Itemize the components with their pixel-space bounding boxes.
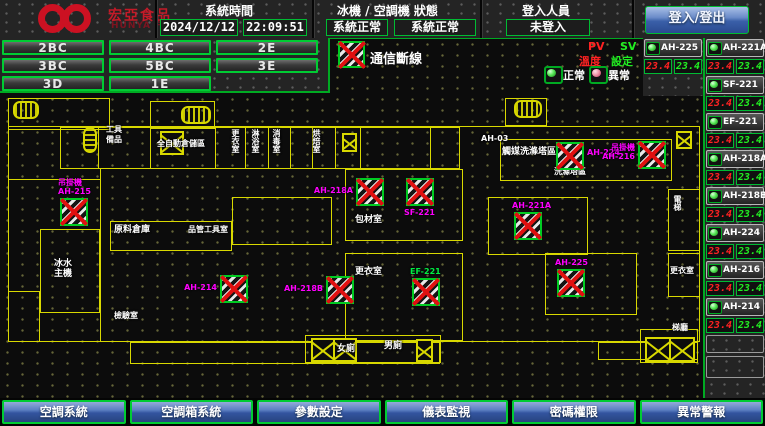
unit-row-ef-221: EF-22123.423.4 — [706, 113, 764, 148]
unit-sv-value: 23.4 — [736, 96, 764, 111]
shaft-icon — [342, 133, 357, 152]
status-led-icon — [708, 116, 722, 129]
unit-name-label: EF-221 — [723, 117, 758, 127]
comm-loss-legend-label: 通信斷線 — [370, 48, 422, 67]
unit-name-label: SF-221 — [723, 80, 758, 90]
device-comm-loss-icon-sf-221[interactable] — [406, 178, 434, 206]
bottom-nav-bar: 空調系統空調箱系統參數設定儀表監視密碼權限異常警報 — [0, 398, 765, 426]
device-label: EF-221 — [410, 267, 441, 276]
status-led-icon — [708, 227, 722, 240]
unit-name-button[interactable]: AH-224 — [706, 224, 764, 242]
system-time-label: 系統時間 — [205, 2, 253, 19]
map-room-label: 工具 備品 — [106, 125, 122, 145]
normal-legend-label: 正常 — [563, 67, 585, 83]
top-bar: 宏亞食品 HUNYA FOODS 系統時間 2024/12/12 22:09:5… — [0, 0, 765, 40]
status-led-icon — [708, 153, 722, 166]
unit-name-button[interactable]: AH-216 — [706, 261, 764, 279]
map-room-label: 包材室 — [355, 215, 382, 225]
wall — [215, 127, 216, 169]
device-label: AH-221A — [512, 201, 551, 210]
device-label: AH-218B — [278, 284, 323, 293]
unit-pv-value: 23.4 — [706, 133, 734, 148]
unit-row-ah-214: AH-21423.423.4 — [706, 298, 764, 333]
wall — [268, 127, 269, 169]
floor-button-4bc[interactable]: 4BC — [109, 40, 211, 55]
unit-name-label: AH-218A — [723, 154, 765, 164]
unit-name-label: AH-224 — [723, 228, 760, 238]
status-led-icon — [708, 301, 722, 314]
map-room-label: 消毒室 — [272, 129, 281, 153]
unit-sv-value: 23.4 — [736, 281, 764, 296]
unit-name-label: AH-225 — [661, 43, 698, 53]
unit-row-ah-225: AH-22523.423.4 — [644, 39, 702, 74]
status-led-icon — [708, 42, 722, 55]
device-comm-loss-icon--ah-216[interactable] — [638, 141, 666, 169]
shaft-icon — [416, 339, 433, 362]
device-label: 吊掛機 AH-215 — [58, 178, 91, 196]
device-label: AH-218A — [308, 186, 353, 195]
login-user-label: 登入人員 — [522, 2, 570, 19]
map-room-label: 觸媒洗滌塔區 — [502, 147, 556, 157]
stairs-icon — [13, 101, 39, 119]
wall — [245, 127, 246, 169]
wall — [335, 127, 336, 169]
map-room-label: 淋浴室 — [251, 129, 260, 153]
brand-logo-icon — [36, 4, 100, 33]
nav-button-1[interactable]: 空調系統 — [2, 400, 126, 424]
unit-sv-value: 23.4 — [736, 59, 764, 74]
map-room-label: 女廁 — [337, 344, 355, 354]
unit-sv-value: 23.4 — [736, 170, 764, 185]
map-room-label: 冰水 主機 — [54, 259, 72, 279]
map-room-label: AH-03 — [481, 134, 508, 144]
unit-name-button[interactable]: AH-214 — [706, 298, 764, 316]
wall — [290, 127, 291, 169]
device-label: AH-214 — [172, 283, 217, 292]
pv-legend-label: PV — [588, 40, 605, 53]
map-room-label: 檢驗室 — [114, 311, 138, 321]
map-room-label: 梯廳 — [672, 323, 688, 333]
divider — [632, 0, 635, 38]
login-logout-button[interactable]: 登入/登出 — [645, 6, 749, 34]
unit-sv-value: 23.4 — [736, 318, 764, 333]
nav-button-6[interactable]: 異常警報 — [640, 400, 764, 424]
device-comm-loss-icon-ah-224[interactable] — [556, 142, 584, 170]
device-comm-loss-icon-ah-225[interactable] — [557, 269, 585, 297]
divider — [480, 0, 483, 38]
floor-button-3e[interactable]: 3E — [216, 58, 318, 73]
chiller-status-value: 系統正常 — [326, 19, 388, 36]
wall — [150, 127, 151, 169]
unit-sv-value: 23.4 — [736, 133, 764, 148]
stairs-icon — [514, 100, 542, 118]
normal-led-icon — [544, 66, 563, 84]
unit-row-ah-224: AH-22423.423.4 — [706, 224, 764, 259]
device-comm-loss-icon-ah-214[interactable] — [220, 275, 248, 303]
login-user-value: 未登入 — [506, 19, 590, 36]
unit-row-ah-218b: AH-218B23.423.4 — [706, 187, 764, 222]
device-label: SF-221 — [404, 208, 435, 217]
device-label: 吊掛機 AH-216 — [590, 143, 635, 161]
nav-button-3[interactable]: 參數設定 — [257, 400, 381, 424]
nav-button-5[interactable]: 密碼權限 — [512, 400, 636, 424]
status-led-icon — [708, 79, 722, 92]
unit-name-button[interactable]: AH-218A — [706, 150, 764, 168]
floor-button-3d[interactable]: 3D — [2, 76, 104, 91]
unit-name-button[interactable]: AH-225 — [644, 39, 702, 57]
map-room-label: 更衣室 — [670, 266, 694, 276]
unit-name-label: AH-218B — [723, 191, 765, 201]
floor-button-3bc[interactable]: 3BC — [2, 58, 104, 73]
device-label: AH-225 — [555, 258, 588, 267]
abnormal-led-icon — [589, 66, 608, 84]
unit-pv-value: 23.4 — [706, 59, 734, 74]
comm-loss-legend-icon — [338, 41, 365, 68]
unit-name-label: AH-216 — [723, 265, 760, 275]
sv-legend-label: SV — [620, 40, 636, 53]
system-date-value: 2024/12/12 — [160, 19, 238, 36]
unit-name-button[interactable]: AH-218B — [706, 187, 764, 205]
unit-list-panel: AH-221A23.423.4SF-22123.423.4EF-22123.42… — [703, 38, 765, 398]
floor-button-2bc[interactable]: 2BC — [2, 40, 104, 55]
unit-sv-value: 23.4 — [736, 207, 764, 222]
shaft-icon — [676, 131, 692, 149]
hmi-screen: 宏亞食品 HUNYA FOODS 系統時間 2024/12/12 22:09:5… — [0, 0, 765, 426]
unit-pv-value: 23.4 — [644, 59, 672, 74]
unit-pv-value: 23.4 — [706, 207, 734, 222]
empty-unit-slot — [706, 356, 764, 378]
wall — [8, 291, 40, 342]
unit-name-label: AH-221A — [723, 43, 765, 53]
unit-name-button[interactable]: AH-221A — [706, 39, 764, 57]
unit-pv-value: 23.4 — [706, 170, 734, 185]
nav-button-4[interactable]: 儀表監視 — [385, 400, 509, 424]
floor-selector-panel: 2BC4BC2E3BC5BC3E3D1E — [0, 38, 330, 93]
device-comm-loss-icon-ef-221[interactable] — [412, 278, 440, 306]
wall — [360, 127, 361, 169]
floor-button-2e[interactable]: 2E — [216, 40, 318, 55]
wall — [100, 169, 101, 342]
unit-row-ah-221a: AH-221A23.423.4 — [706, 39, 764, 74]
map-room-label: 更衣室 — [355, 267, 382, 277]
map-room-label: 原料倉庫 — [114, 225, 150, 235]
wall — [98, 127, 99, 169]
unit-row-ah-218a: AH-218A23.423.4 — [706, 150, 764, 185]
wall — [430, 127, 431, 169]
wall — [232, 197, 332, 245]
map-room-label: 烘焙室 — [312, 129, 321, 153]
unit-row-sf-221: SF-22123.423.4 — [706, 76, 764, 111]
unit-sv-value: 23.4 — [736, 244, 764, 259]
unit-pv-value: 23.4 — [706, 281, 734, 296]
abnormal-legend-label: 異常 — [608, 67, 630, 83]
device-comm-loss-icon-ah-218a[interactable] — [356, 178, 384, 206]
status-led-icon — [708, 190, 722, 203]
divider — [155, 0, 158, 38]
device-comm-loss-icon-ah-221a[interactable] — [514, 212, 542, 240]
unit-name-label: AH-214 — [723, 302, 760, 312]
unit-name-button[interactable]: EF-221 — [706, 113, 764, 131]
map-room-label: 男廁 — [384, 341, 402, 351]
map-room-label: 品管工具室 — [188, 225, 228, 235]
unit-pv-value: 23.4 — [706, 96, 734, 111]
map-room-label: 更衣室 — [231, 129, 240, 153]
device-comm-loss-icon--ah-215[interactable] — [60, 198, 88, 226]
divider — [312, 0, 315, 38]
empty-unit-slot — [706, 335, 764, 353]
device-comm-loss-icon-ah-218b[interactable] — [326, 276, 354, 304]
status-led-icon — [708, 264, 722, 277]
machine-status-label: 冰機 / 空調機 狀態 — [337, 2, 438, 19]
unit-row-ah-216: AH-21623.423.4 — [706, 261, 764, 296]
featured-unit-slot: AH-22523.423.4 — [643, 38, 703, 96]
system-clock-value: 22:09:51 — [243, 19, 307, 36]
unit-pv-value: 23.4 — [706, 244, 734, 259]
shaft-icon — [645, 337, 695, 362]
nav-button-2[interactable]: 空調箱系統 — [130, 400, 254, 424]
ac-status-value: 系統正常 — [394, 19, 476, 36]
map-room-label: 電梯 — [673, 195, 682, 211]
unit-pv-value: 23.4 — [706, 318, 734, 333]
stairs-icon — [83, 127, 97, 153]
unit-sv-value: 23.4 — [674, 59, 702, 74]
status-led-icon — [646, 42, 660, 55]
unit-name-button[interactable]: SF-221 — [706, 76, 764, 94]
map-room-label: 全自動倉儲區 — [157, 139, 205, 149]
stairs-icon — [181, 106, 211, 124]
floor-button-5bc[interactable]: 5BC — [109, 58, 211, 73]
floor-button-1e[interactable]: 1E — [109, 76, 211, 91]
